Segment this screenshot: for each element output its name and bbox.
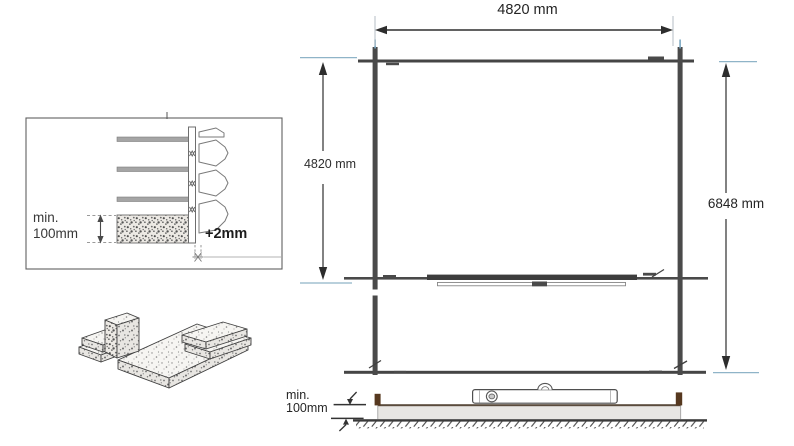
top-width-dimension (375, 16, 673, 46)
manual-page: 4820 mm 4820 mm 6848 mm min. 100mm +2mm … (0, 0, 794, 446)
technical-drawing-layer (0, 0, 794, 446)
spirit-level (473, 383, 618, 403)
dimension-label-top-width: 4820 mm (455, 3, 600, 18)
section-min-label-line2: 100mm (286, 402, 328, 415)
ground-hatch (356, 421, 704, 428)
threshold-board (427, 275, 637, 287)
dimension-label-left-height: 4820 mm (299, 158, 361, 171)
right-wood-post (676, 392, 682, 405)
ground-section-drawing (331, 383, 707, 431)
foundation-strip (117, 215, 195, 243)
joint-marks (369, 57, 687, 374)
foundation-plan-drawing (300, 16, 759, 375)
right-height-dimension (713, 62, 759, 373)
inset-offset-label: +2mm (205, 227, 247, 242)
inset-min-label-line2: 100mm (33, 227, 78, 241)
slab-top-edge (378, 404, 682, 406)
left-wood-post (375, 394, 381, 406)
corner-post (189, 127, 196, 243)
foundation-slab (378, 405, 682, 419)
top-beam (358, 60, 694, 63)
ground-line (353, 419, 707, 421)
right-post (678, 47, 683, 375)
inset-min-label-line1: min. (33, 211, 59, 225)
left-post (373, 47, 378, 375)
paving-slabs-illustration (79, 313, 251, 388)
inset-detail-drawing (26, 112, 282, 269)
dimension-label-right-height: 6848 mm (700, 197, 772, 211)
